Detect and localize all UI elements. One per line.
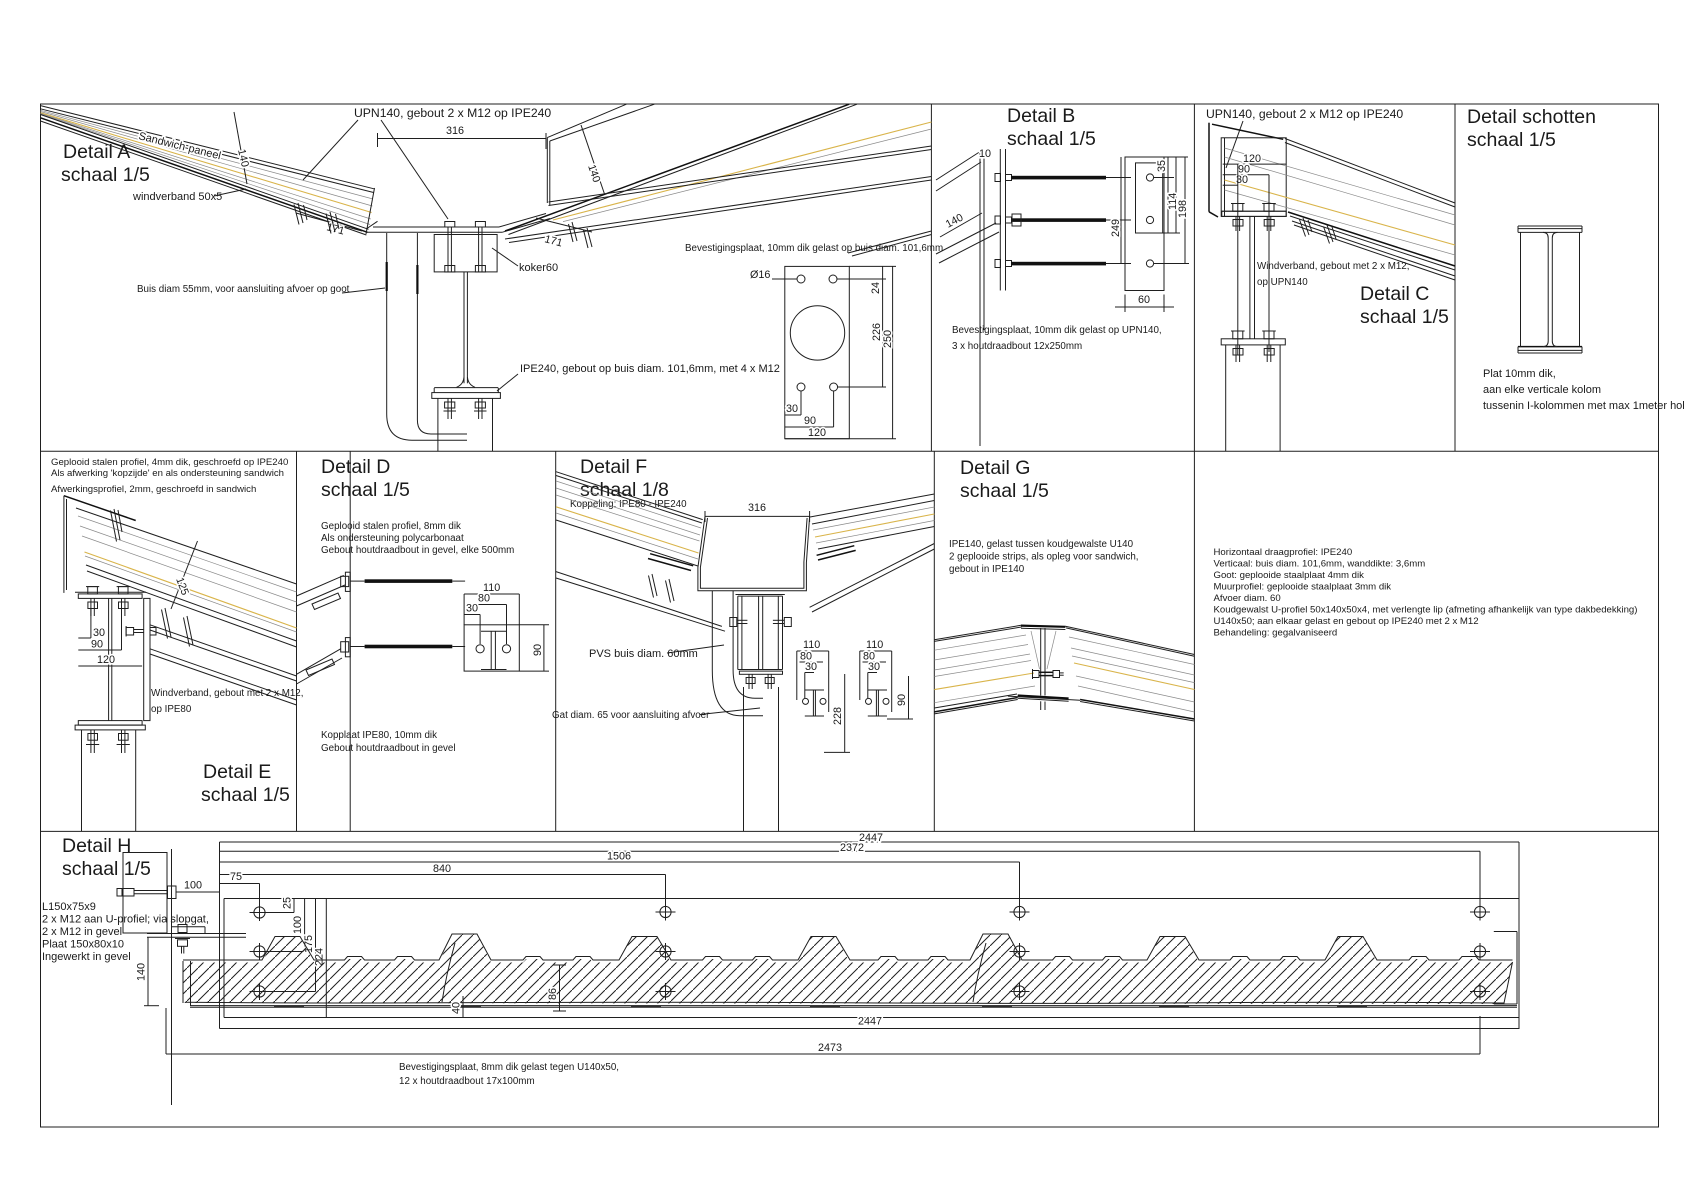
svg-text:86: 86 bbox=[547, 988, 559, 1000]
svg-text:228: 228 bbox=[832, 707, 844, 725]
svg-text:2372: 2372 bbox=[840, 842, 864, 854]
svg-text:IPE240, gebout op buis diam. 1: IPE240, gebout op buis diam. 101,6mm, me… bbox=[520, 363, 780, 375]
svg-text:Detail G: Detail G bbox=[960, 457, 1030, 479]
svg-text:316: 316 bbox=[446, 125, 464, 137]
svg-text:UPN140, gebout 2 x M12 op IPE2: UPN140, gebout 2 x M12 op IPE240 bbox=[354, 106, 551, 120]
svg-text:80: 80 bbox=[478, 593, 490, 605]
svg-text:Afwerkingsprofiel, 2mm, geschr: Afwerkingsprofiel, 2mm, geschroefd in sa… bbox=[51, 484, 256, 495]
svg-text:Bevestigingsplaat, 10mm dik ge: Bevestigingsplaat, 10mm dik gelast op bu… bbox=[685, 243, 943, 254]
svg-text:100: 100 bbox=[184, 880, 202, 892]
svg-text:198: 198 bbox=[1177, 200, 1189, 218]
svg-text:60: 60 bbox=[1138, 294, 1150, 306]
svg-text:Als afwerking 'kopzijde' en al: Als afwerking 'kopzijde' en als onderste… bbox=[51, 468, 284, 479]
svg-text:op IPE80: op IPE80 bbox=[151, 704, 192, 715]
svg-text:Behandeling: gegalvaniseerd: Behandeling: gegalvaniseerd bbox=[1214, 628, 1338, 639]
svg-text:Detail E: Detail E bbox=[203, 761, 271, 783]
svg-text:10: 10 bbox=[979, 148, 991, 160]
svg-text:35: 35 bbox=[1156, 160, 1168, 172]
svg-text:30: 30 bbox=[868, 661, 880, 673]
svg-text:gebout in IPE140: gebout in IPE140 bbox=[949, 564, 1025, 575]
svg-text:schaal 1/5: schaal 1/5 bbox=[960, 480, 1049, 502]
svg-text:Ingewerkt in gevel: Ingewerkt in gevel bbox=[42, 951, 131, 963]
svg-text:25: 25 bbox=[282, 897, 294, 909]
svg-text:Windverband, gebout met 2 x M1: Windverband, gebout met 2 x M12, bbox=[1257, 261, 1409, 272]
svg-text:schaal 1/5: schaal 1/5 bbox=[201, 784, 290, 806]
svg-text:140: 140 bbox=[136, 963, 148, 981]
svg-text:120: 120 bbox=[808, 427, 826, 439]
svg-text:30: 30 bbox=[805, 661, 817, 673]
svg-text:Gebout houtdraadbout in gevel,: Gebout houtdraadbout in gevel, elke 500m… bbox=[321, 545, 514, 556]
svg-text:Plat 10mm dik,: Plat 10mm dik, bbox=[1483, 368, 1556, 380]
svg-text:Gat diam. 65 voor aansluiting: Gat diam. 65 voor aansluiting afvoer bbox=[552, 710, 710, 721]
svg-text:schaal 1/5: schaal 1/5 bbox=[1360, 306, 1449, 328]
svg-text:90: 90 bbox=[896, 694, 908, 706]
svg-text:90: 90 bbox=[532, 644, 544, 656]
svg-text:schaal 1/5: schaal 1/5 bbox=[62, 858, 151, 880]
svg-text:op UPN140: op UPN140 bbox=[1257, 277, 1308, 288]
svg-text:Bevestigingsplaat, 8mm dik gel: Bevestigingsplaat, 8mm dik gelast tegen … bbox=[399, 1062, 619, 1073]
svg-text:250: 250 bbox=[882, 330, 894, 348]
svg-text:Ø16: Ø16 bbox=[750, 269, 770, 281]
svg-text:90: 90 bbox=[804, 415, 816, 427]
svg-text:Geplooid stalen profiel, 4mm d: Geplooid stalen profiel, 4mm dik, geschr… bbox=[51, 457, 288, 468]
svg-text:Detail schotten: Detail schotten bbox=[1467, 106, 1596, 128]
svg-text:12 x houtdraadbout 17x100mm: 12 x houtdraadbout 17x100mm bbox=[399, 1076, 535, 1087]
svg-text:840: 840 bbox=[433, 863, 451, 875]
svg-text:2 x M12 aan U-profiel; via slo: 2 x M12 aan U-profiel; via slopgat, bbox=[42, 914, 209, 926]
svg-text:3 x houtdraadbout 12x250mm: 3 x houtdraadbout 12x250mm bbox=[952, 341, 1082, 352]
svg-text:40: 40 bbox=[451, 1002, 463, 1014]
svg-text:Detail D: Detail D bbox=[321, 456, 390, 478]
svg-text:Bevestigingsplaat, 10mm dik ge: Bevestigingsplaat, 10mm dik gelast op UP… bbox=[952, 325, 1162, 336]
svg-text:tussenin I-kolommen met max 1m: tussenin I-kolommen met max 1meter hoh bbox=[1483, 400, 1684, 412]
svg-text:1506: 1506 bbox=[607, 851, 631, 863]
svg-text:30: 30 bbox=[93, 627, 105, 639]
svg-text:Als ondersteuning polycarbonaa: Als ondersteuning polycarbonaat bbox=[321, 533, 464, 544]
svg-text:Muurprofiel: geplooide staalpl: Muurprofiel: geplooide staalplaat 3mm di… bbox=[1214, 582, 1392, 593]
svg-text:U140x50; aan elkaar gelast en: U140x50; aan elkaar gelast en gebout op … bbox=[1214, 616, 1479, 627]
svg-text:Koudgewalst U-profiel 50x140x5: Koudgewalst U-profiel 50x140x50x4, met v… bbox=[1214, 605, 1638, 616]
svg-text:aan elke verticale kolom: aan elke verticale kolom bbox=[1483, 384, 1601, 396]
svg-text:Afvoer diam. 60: Afvoer diam. 60 bbox=[1214, 593, 1281, 604]
svg-text:120: 120 bbox=[97, 654, 115, 666]
svg-text:2447: 2447 bbox=[858, 1016, 882, 1028]
svg-text:IPE140, gelast tussen koudgewa: IPE140, gelast tussen koudgewalste U140 bbox=[949, 539, 1134, 550]
svg-text:schaal 1/5: schaal 1/5 bbox=[1467, 129, 1556, 151]
svg-text:Windverband, gebout met 2 x M1: Windverband, gebout met 2 x M12, bbox=[151, 688, 303, 699]
svg-text:Detail A: Detail A bbox=[63, 141, 130, 163]
svg-text:75: 75 bbox=[230, 871, 242, 883]
svg-text:Verticaal: buis diam. 101,6mm,: Verticaal: buis diam. 101,6mm, wanddikte… bbox=[1214, 559, 1426, 570]
svg-text:2 x M12 in gevel: 2 x M12 in gevel bbox=[42, 926, 122, 938]
svg-text:Goot: geplooide staalplaat 4mm: Goot: geplooide staalplaat 4mm dik bbox=[1214, 570, 1365, 581]
svg-text:schaal 1/5: schaal 1/5 bbox=[321, 479, 410, 501]
svg-text:2 geplooide strips, als opleg: 2 geplooide strips, als opleg voor sandw… bbox=[949, 552, 1139, 563]
svg-text:Buis diam 55mm, voor aansluiti: Buis diam 55mm, voor aansluiting afvoer … bbox=[137, 284, 350, 295]
svg-text:Kopplaat IPE80, 10mm dik: Kopplaat IPE80, 10mm dik bbox=[321, 730, 437, 741]
svg-text:249: 249 bbox=[1110, 219, 1122, 237]
svg-text:110: 110 bbox=[803, 639, 820, 651]
svg-text:schaal 1/5: schaal 1/5 bbox=[1007, 128, 1096, 150]
svg-text:100: 100 bbox=[292, 916, 304, 934]
svg-text:Plaat 150x80x10: Plaat 150x80x10 bbox=[42, 939, 124, 951]
svg-text:24: 24 bbox=[870, 282, 882, 294]
svg-text:Horizontaal draagprofiel: IPE2: Horizontaal draagprofiel: IPE240 bbox=[1214, 547, 1353, 558]
svg-text:110: 110 bbox=[866, 639, 883, 651]
svg-text:Geplooid stalen profiel, 8mm d: Geplooid stalen profiel, 8mm dik bbox=[321, 521, 461, 532]
svg-text:Detail F: Detail F bbox=[580, 456, 647, 478]
svg-text:30: 30 bbox=[466, 603, 478, 615]
svg-text:L150x75x9: L150x75x9 bbox=[42, 901, 96, 913]
svg-text:Detail C: Detail C bbox=[1360, 283, 1429, 305]
svg-text:316: 316 bbox=[748, 502, 766, 514]
svg-text:30: 30 bbox=[786, 403, 798, 415]
svg-text:PVS buis diam. 60mm: PVS buis diam. 60mm bbox=[589, 648, 698, 660]
svg-text:windverband 50x5: windverband 50x5 bbox=[132, 191, 222, 203]
svg-text:UPN140, gebout 2 x M12 op IPE2: UPN140, gebout 2 x M12 op IPE240 bbox=[1206, 107, 1403, 121]
svg-text:Gebout houtdraadbout in gevel: Gebout houtdraadbout in gevel bbox=[321, 743, 456, 754]
svg-text:Detail H: Detail H bbox=[62, 835, 131, 857]
svg-text:schaal 1/5: schaal 1/5 bbox=[61, 164, 150, 186]
svg-text:koker60: koker60 bbox=[519, 262, 558, 274]
svg-text:2473: 2473 bbox=[818, 1042, 842, 1054]
svg-text:90: 90 bbox=[91, 639, 103, 651]
svg-text:Detail B: Detail B bbox=[1007, 105, 1075, 127]
